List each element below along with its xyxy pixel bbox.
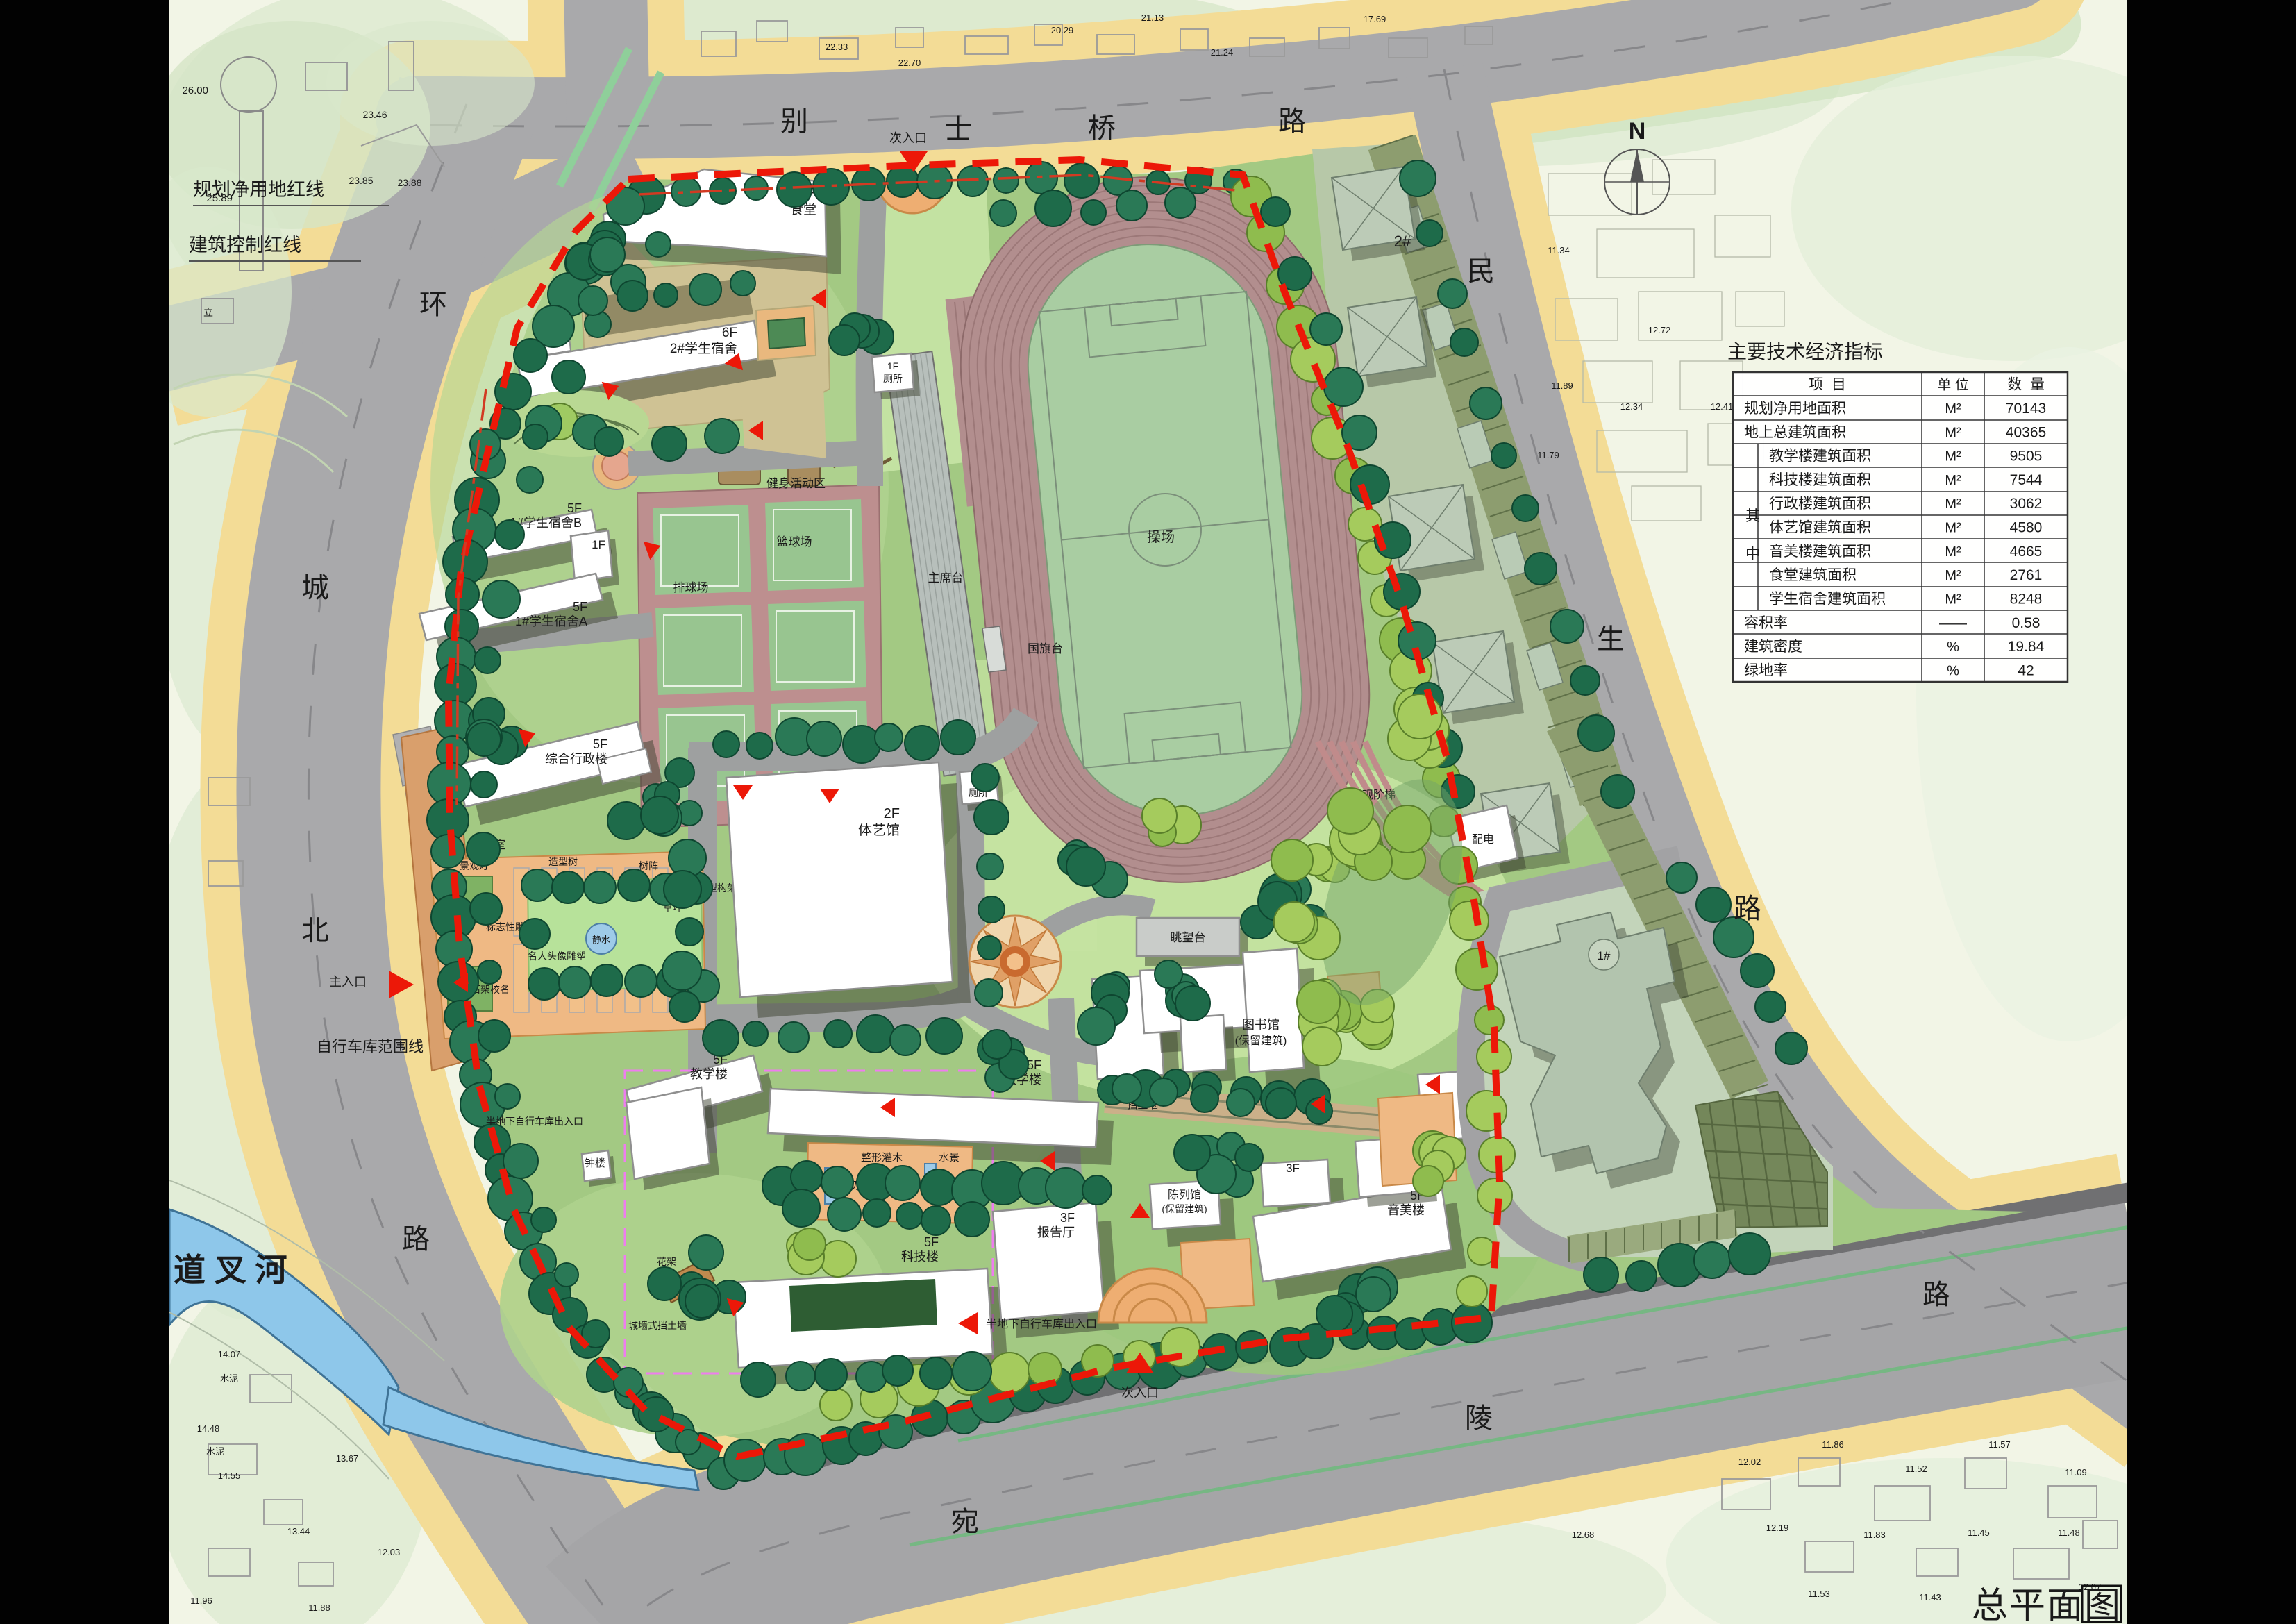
svg-text:体艺馆建筑面积: 体艺馆建筑面积 [1769,520,1871,536]
svg-text:水泥: 水泥 [220,1373,238,1384]
svg-text:音美楼: 音美楼 [1387,1203,1425,1217]
svg-text:42: 42 [2018,662,2034,678]
svg-text:规划净用地面积: 规划净用地面积 [1744,401,1846,417]
svg-text:陵: 陵 [1465,1403,1493,1434]
svg-text:%: % [1947,639,1959,655]
svg-text:M²: M² [1945,449,1961,464]
svg-text:11.52: 11.52 [1905,1464,1927,1474]
svg-text:5F: 5F [573,600,587,614]
svg-text:其: 其 [1745,508,1760,524]
svg-text:13.67: 13.67 [336,1453,359,1464]
svg-text:路: 路 [1278,106,1306,137]
svg-text:厕所: 厕所 [883,373,903,384]
svg-text:报告厅: 报告厅 [1037,1225,1075,1239]
svg-text:23.46: 23.46 [362,109,387,120]
svg-text:项 目: 项 目 [1809,377,1846,393]
svg-text:11.09: 11.09 [2065,1467,2087,1477]
svg-text:造型树: 造型树 [548,856,578,867]
svg-text:道 叉 河: 道 叉 河 [174,1252,287,1288]
svg-text:食堂建筑面积: 食堂建筑面积 [1769,567,1857,583]
svg-text:树阵: 树阵 [639,860,658,871]
svg-text:11.86: 11.86 [1822,1439,1844,1450]
svg-text:4580: 4580 [2010,520,2043,536]
svg-text:健身活动区: 健身活动区 [766,477,826,490]
svg-text:1#学生宿舍A: 1#学生宿舍A [515,614,587,628]
svg-text:主入口: 主入口 [329,975,367,989]
svg-text:眺望台: 眺望台 [1171,931,1206,944]
svg-text:篮球场: 篮球场 [777,535,812,549]
svg-text:绿地率: 绿地率 [1744,662,1788,678]
svg-text:5F: 5F [567,501,582,515]
svg-text:40365: 40365 [2006,424,2046,440]
svg-text:M²: M² [1945,521,1961,536]
svg-text:操场: 操场 [1147,529,1175,545]
svg-text:半地下自行车库出入口: 半地下自行车库出入口 [486,1116,583,1127]
svg-text:7544: 7544 [2010,472,2043,488]
svg-text:11.79: 11.79 [1537,450,1559,460]
svg-text:M²: M² [1945,401,1961,417]
svg-text:23.85: 23.85 [349,175,373,186]
svg-text:1#: 1# [1598,949,1611,962]
svg-text:规划净用地红线: 规划净用地红线 [193,179,324,200]
svg-text:次入口: 次入口 [889,131,927,145]
svg-text:2#: 2# [1394,233,1411,250]
svg-text:(保留建筑): (保留建筑) [1235,1035,1287,1047]
svg-text:次入口: 次入口 [1121,1386,1159,1400]
svg-text:立: 立 [203,307,213,318]
svg-text:1F: 1F [592,538,605,551]
svg-text:静水: 静水 [592,935,610,945]
svg-text:教学楼: 教学楼 [690,1067,728,1081]
svg-text:20.29: 20.29 [1051,25,1074,35]
svg-text:11.45: 11.45 [1968,1527,1990,1538]
svg-text:22.33: 22.33 [826,42,848,52]
svg-text:12.41: 12.41 [1711,401,1734,412]
svg-text:生: 生 [1597,624,1625,655]
svg-text:地上总建筑面积: 地上总建筑面积 [1744,424,1846,440]
svg-text:建筑控制红线: 建筑控制红线 [189,235,301,256]
svg-text:城墙式挡土墙: 城墙式挡土墙 [628,1320,687,1331]
svg-text:行政楼建筑面积: 行政楼建筑面积 [1769,496,1871,512]
svg-text:12.68: 12.68 [1572,1530,1595,1540]
svg-text:12.72: 12.72 [1648,325,1671,335]
svg-text:1F: 1F [887,360,898,371]
svg-text:21.24: 21.24 [1211,47,1234,58]
svg-text:宛: 宛 [951,1507,979,1537]
svg-text:3F: 3F [1060,1211,1075,1225]
svg-text:环: 环 [419,290,447,320]
svg-text:综合行政楼: 综合行政楼 [545,752,607,766]
svg-text:音美楼建筑面积: 音美楼建筑面积 [1769,544,1871,560]
svg-text:14.07: 14.07 [218,1349,241,1359]
svg-text:2761: 2761 [2010,567,2043,583]
svg-text:花架: 花架 [657,1256,676,1267]
svg-text:陈列馆: 陈列馆 [1168,1189,1201,1201]
svg-text:11.34: 11.34 [1548,245,1570,256]
svg-text:11.83: 11.83 [1863,1530,1886,1540]
svg-text:配电: 配电 [1472,833,1494,846]
svg-text:半地下自行车库出入口: 半地下自行车库出入口 [986,1318,1097,1330]
svg-text:12.03: 12.03 [378,1547,401,1557]
svg-text:水景: 水景 [939,1152,960,1164]
svg-text:科技楼: 科技楼 [901,1250,939,1264]
svg-text:路: 路 [402,1224,430,1255]
svg-text:12.34: 12.34 [1620,401,1643,412]
svg-text:M²: M² [1945,544,1961,560]
svg-text:自行车库范围线: 自行车库范围线 [317,1038,424,1055]
svg-text:科技楼建筑面积: 科技楼建筑面积 [1769,472,1871,488]
svg-text:26.00: 26.00 [182,85,208,97]
svg-text:2#学生宿舍: 2#学生宿舍 [670,341,737,356]
svg-text:——: —— [1939,616,1967,631]
svg-text:路: 路 [1922,1280,1950,1310]
svg-text:民: 民 [1467,256,1495,287]
svg-text:总平面图: 总平面图 [1972,1586,2122,1624]
svg-text:排球场: 排球场 [673,581,709,594]
svg-text:11.96: 11.96 [190,1596,212,1606]
svg-text:70143: 70143 [2006,401,2046,417]
svg-text:体艺馆: 体艺馆 [858,822,900,838]
svg-text:23.88: 23.88 [397,177,421,188]
svg-text:14.48: 14.48 [197,1423,220,1434]
svg-text:6F: 6F [722,326,737,340]
svg-text:17.69: 17.69 [1364,14,1386,24]
svg-text:N: N [1629,118,1646,144]
svg-text:11.57: 11.57 [1988,1439,2011,1450]
svg-text:3F: 3F [1286,1162,1300,1175]
svg-text:建筑密度: 建筑密度 [1744,639,1802,655]
svg-text:9505: 9505 [2010,449,2043,464]
svg-text:M²: M² [1945,568,1961,583]
svg-text:0.58: 0.58 [2012,615,2041,631]
svg-text:路: 路 [1734,894,1761,924]
svg-text:8248: 8248 [2010,591,2043,607]
svg-text:名人头像雕塑: 名人头像雕塑 [528,951,586,962]
svg-text:城: 城 [301,573,329,603]
svg-text:(保留建筑): (保留建筑) [1162,1203,1207,1214]
svg-text:中: 中 [1745,546,1760,562]
svg-text:11.89: 11.89 [1551,380,1573,391]
svg-text:容积率: 容积率 [1744,615,1788,631]
svg-text:14.55: 14.55 [218,1471,241,1481]
svg-text:数 量: 数 量 [2007,377,2045,393]
svg-text:M²: M² [1945,496,1961,512]
svg-text:11.88: 11.88 [308,1602,330,1613]
svg-text:%: % [1947,663,1959,678]
svg-text:5F: 5F [1027,1058,1041,1072]
svg-text:别: 别 [780,106,808,137]
svg-text:5F: 5F [924,1235,939,1249]
svg-text:11.43: 11.43 [1919,1592,1941,1602]
svg-text:图书馆: 图书馆 [1242,1018,1280,1032]
svg-text:12.19: 12.19 [1766,1523,1789,1533]
svg-text:13.44: 13.44 [287,1526,310,1537]
svg-text:学生宿舍建筑面积: 学生宿舍建筑面积 [1769,591,1886,607]
svg-text:主要技术经济指标: 主要技术经济指标 [1727,341,1883,362]
svg-text:21.13: 21.13 [1141,12,1164,23]
svg-text:3062: 3062 [2010,496,2043,512]
svg-text:M²: M² [1945,592,1961,607]
svg-text:国旗台: 国旗台 [1028,642,1063,655]
svg-text:11.48: 11.48 [2058,1527,2080,1538]
svg-text:整形灌木: 整形灌木 [861,1152,903,1164]
svg-text:士: 士 [944,115,972,145]
svg-text:钟楼: 钟楼 [585,1157,605,1169]
svg-text:教学楼建筑面积: 教学楼建筑面积 [1769,449,1871,464]
svg-text:2F: 2F [884,806,900,821]
svg-text:19.84: 19.84 [2008,639,2045,655]
svg-text:单 位: 单 位 [1937,377,1969,393]
svg-text:12.02: 12.02 [1738,1457,1761,1467]
svg-text:M²: M² [1945,425,1961,440]
svg-text:水泥: 水泥 [206,1446,224,1457]
svg-text:22.70: 22.70 [898,58,921,68]
svg-text:北: 北 [301,916,329,946]
svg-text:M²: M² [1945,473,1961,488]
svg-text:5F: 5F [593,737,607,751]
svg-text:11.53: 11.53 [1808,1589,1830,1599]
svg-text:主席台: 主席台 [928,571,964,585]
svg-text:桥: 桥 [1088,113,1116,144]
svg-text:4665: 4665 [2010,544,2043,560]
